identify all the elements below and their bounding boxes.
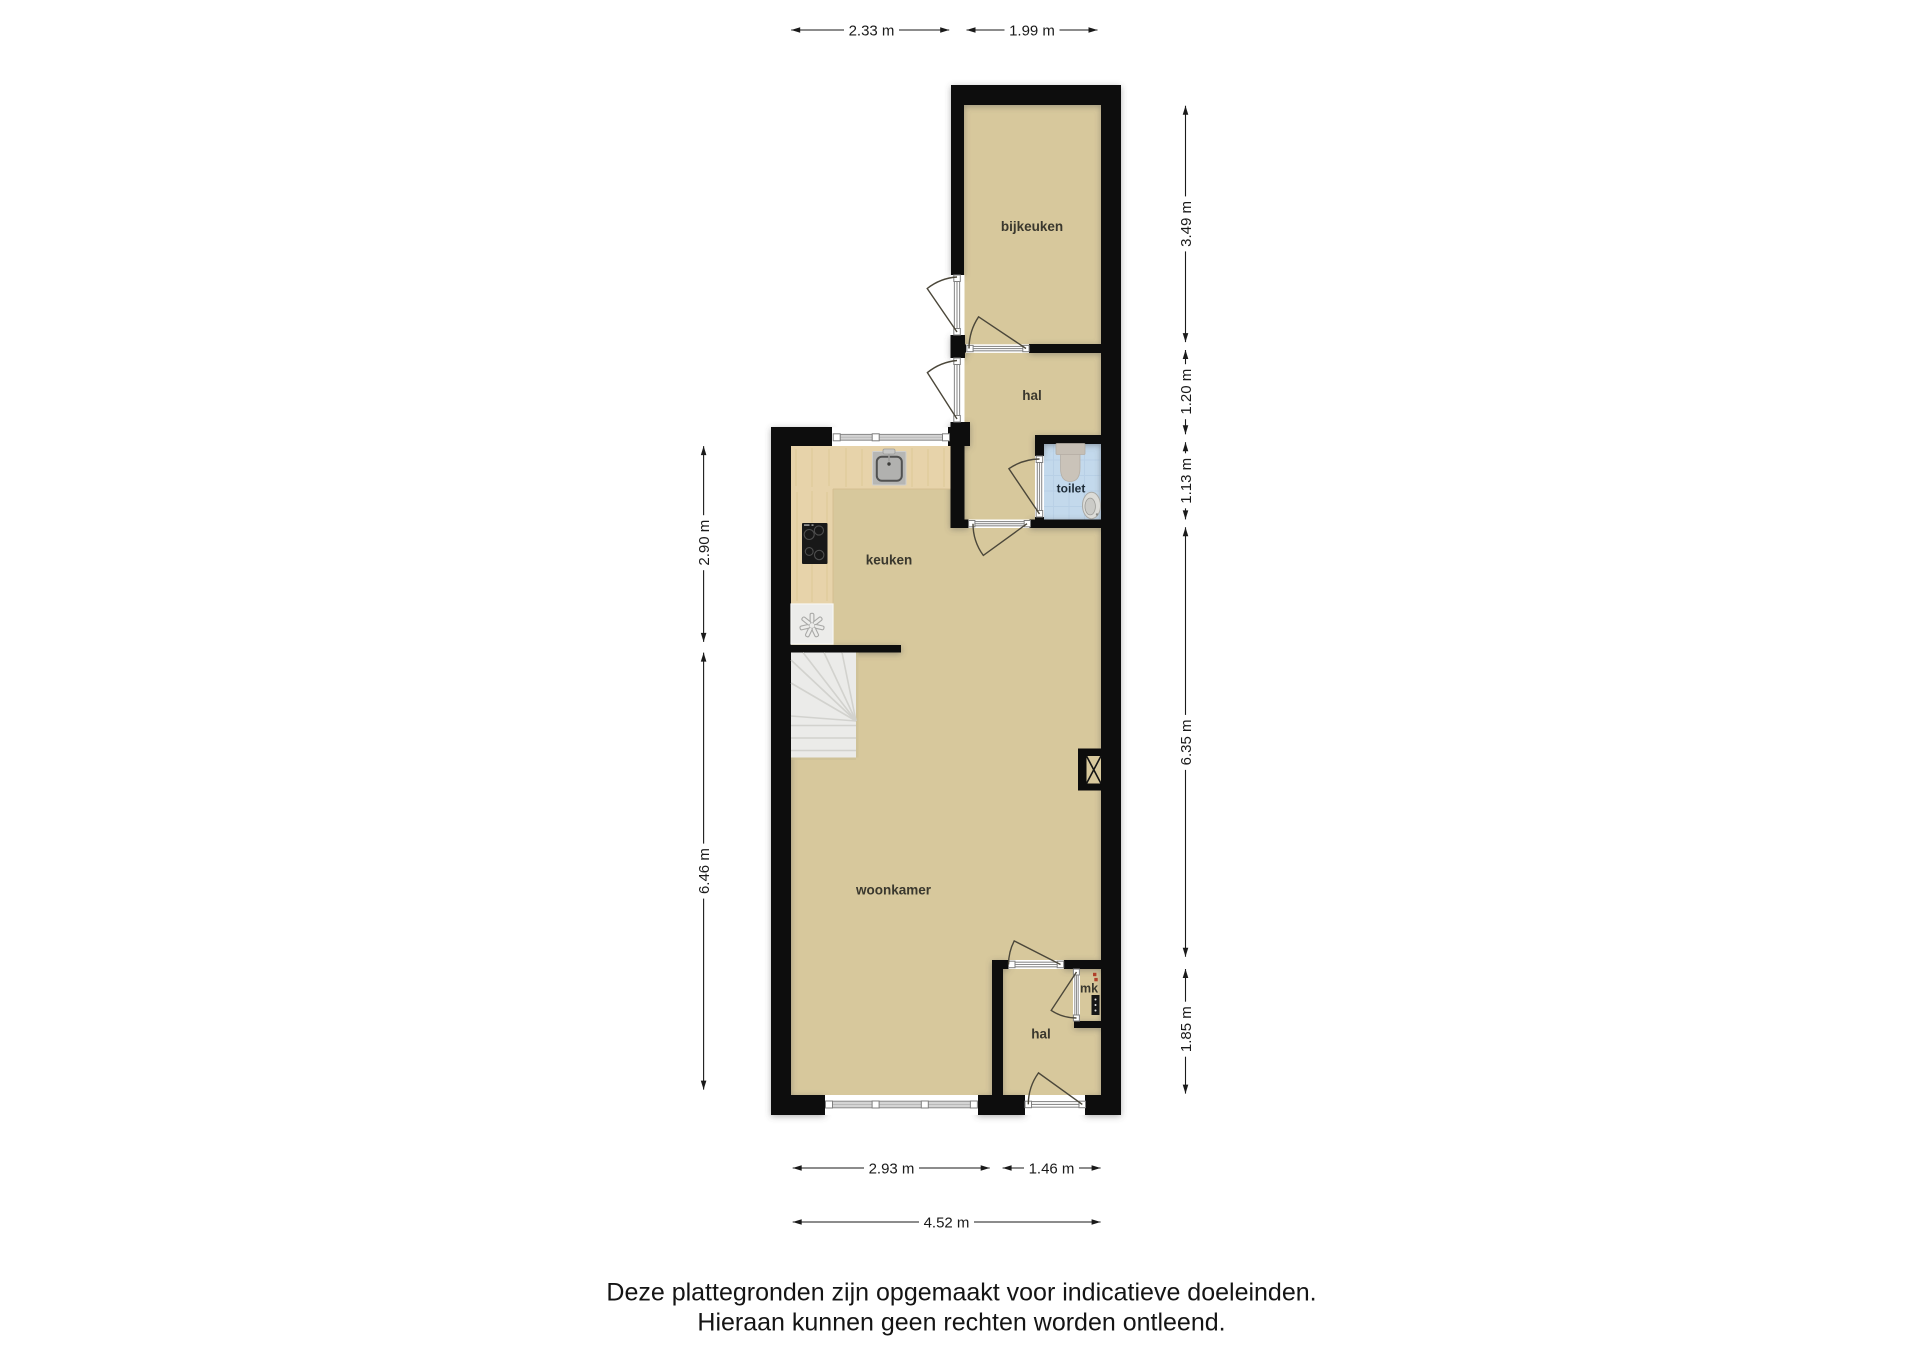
svg-text:4.52 m: 4.52 m	[924, 1215, 970, 1232]
svg-text:Deze plattegronden zijn opgema: Deze plattegronden zijn opgemaakt voor i…	[606, 1279, 1316, 1307]
svg-text:bijkeuken: bijkeuken	[1001, 219, 1063, 234]
svg-text:woonkamer: woonkamer	[855, 883, 932, 898]
svg-text:hal: hal	[1031, 1027, 1051, 1042]
svg-text:hal: hal	[1022, 388, 1042, 403]
svg-text:1.46 m: 1.46 m	[1029, 1161, 1075, 1178]
svg-text:1.85 m: 1.85 m	[1178, 1006, 1195, 1052]
svg-text:2.93 m: 2.93 m	[869, 1161, 915, 1178]
svg-text:keuken: keuken	[866, 553, 913, 568]
svg-text:6.35 m: 6.35 m	[1178, 719, 1195, 765]
svg-text:mk: mk	[1080, 982, 1098, 996]
svg-text:3.49 m: 3.49 m	[1178, 201, 1195, 247]
svg-text:Hieraan kunnen geen rechten wo: Hieraan kunnen geen rechten worden ontle…	[697, 1309, 1225, 1337]
svg-text:1.13 m: 1.13 m	[1178, 458, 1195, 504]
svg-text:1.20 m: 1.20 m	[1178, 369, 1195, 415]
svg-text:toilet: toilet	[1057, 482, 1086, 496]
svg-text:6.46 m: 6.46 m	[696, 848, 713, 894]
svg-text:2.90 m: 2.90 m	[696, 520, 713, 566]
svg-text:1.99 m: 1.99 m	[1009, 23, 1055, 40]
svg-text:2.33 m: 2.33 m	[849, 23, 895, 40]
